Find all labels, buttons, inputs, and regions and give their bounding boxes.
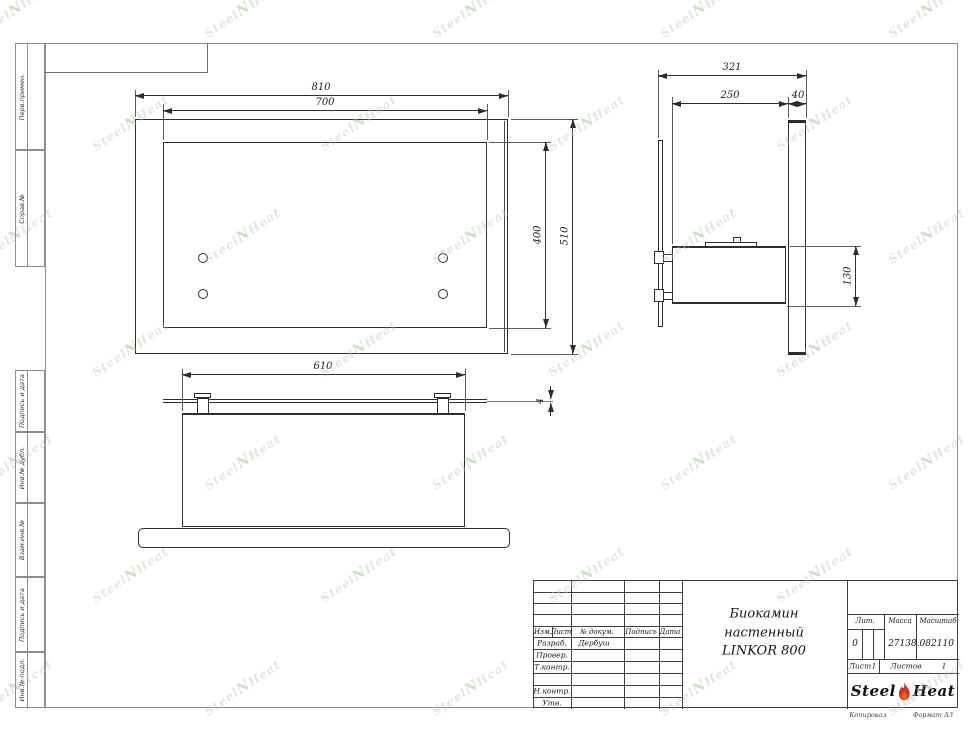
dim-label-40: 40 xyxy=(792,90,805,101)
glass-clip-body xyxy=(437,398,449,414)
frame-topleft-graph-box xyxy=(45,43,208,73)
glass-clip-body xyxy=(197,398,209,414)
dim-label-130: 130 xyxy=(843,266,854,285)
drawing-sheet: Перв.примен. Справ.№ Подпись и дата Инв.… xyxy=(0,0,970,750)
margin-divider xyxy=(27,504,28,576)
dim-line-4-upper xyxy=(550,386,551,399)
margin-label: Взам.инв.№ xyxy=(18,520,26,560)
dim-label-4: 4 xyxy=(536,398,546,404)
tb-line xyxy=(916,614,917,659)
tb-line xyxy=(847,614,959,615)
watermark: SteelNHeat xyxy=(201,0,284,42)
mounting-hole xyxy=(198,289,208,299)
margin-divider xyxy=(27,44,28,149)
margin-box-vzam-inv: Взам.инв.№ xyxy=(15,503,45,577)
margin-divider xyxy=(27,151,28,266)
extension-line xyxy=(489,328,551,329)
title-block: Изм. Лист № докум. Подпись Дата Разраб. … xyxy=(533,580,958,708)
watermark: SteelNHeat xyxy=(0,0,56,42)
dim-label-700: 700 xyxy=(315,97,334,108)
extension-line xyxy=(511,119,578,120)
top-view-burner-box xyxy=(182,413,465,527)
margin-label: Справ.№ xyxy=(18,194,26,224)
extension-line xyxy=(658,70,659,138)
extension-line xyxy=(487,104,488,140)
extension-line xyxy=(787,306,861,307)
tb-sheet-value: 1 xyxy=(872,662,877,671)
side-view-bolt-shaft xyxy=(663,254,673,262)
tb-line xyxy=(659,581,660,709)
tb-sheet-label: Лист xyxy=(849,662,871,671)
tb-col-dokum: № докум. xyxy=(580,628,614,636)
margin-box-podpis-data-2: Подпись и дата xyxy=(15,577,45,652)
tb-lit-value: 0 xyxy=(852,639,858,649)
extension-line xyxy=(672,97,673,244)
margin-label: Инв.№ дубл. xyxy=(18,446,26,488)
margin-box-sprav-no: Справ.№ xyxy=(15,150,45,267)
extension-line xyxy=(806,70,807,118)
side-view-top-plate xyxy=(705,242,757,247)
watermark: SteelNHeat xyxy=(657,0,740,42)
tb-line xyxy=(847,629,884,630)
copied-note: Копировал xyxy=(849,711,886,719)
dim-line-250 xyxy=(672,103,788,104)
tb-row-label: Н.контр. xyxy=(533,687,570,696)
tb-lit-label: Лит. xyxy=(855,617,874,625)
side-view-burner-box xyxy=(672,246,786,304)
dim-line-40 xyxy=(788,103,806,104)
dim-label-610: 610 xyxy=(313,361,332,372)
mounting-hole xyxy=(198,253,208,263)
watermark: SteelNHeat xyxy=(429,0,512,42)
tb-col-list: Лист xyxy=(551,628,572,636)
extension-line xyxy=(465,369,466,411)
tb-line xyxy=(534,626,682,627)
margin-divider xyxy=(27,371,28,431)
margin-box-inv-podl: Инв.№ подл. xyxy=(15,652,45,708)
side-view-bolt-shaft xyxy=(663,292,673,300)
dim-line-610 xyxy=(182,374,465,375)
tb-line xyxy=(847,673,959,674)
margin-box-inv-dubl: Инв.№ дубл. xyxy=(15,432,45,503)
tb-line xyxy=(873,629,874,659)
dim-line-321 xyxy=(658,75,806,76)
top-view-wall-panel xyxy=(138,528,510,548)
tb-row-label: Т.контр. xyxy=(534,663,570,672)
logo-text-steel: Steel xyxy=(851,682,896,700)
doc-title-line2: настенный xyxy=(724,626,804,641)
dim-line-4-lower xyxy=(550,403,551,416)
dim-line-700 xyxy=(163,110,487,111)
tb-line xyxy=(534,592,682,593)
dim-line-810 xyxy=(135,95,508,96)
side-view-burner-nub xyxy=(733,237,741,243)
extension-line xyxy=(508,90,509,117)
margin-label: Перв.примен. xyxy=(18,73,26,120)
tb-line xyxy=(682,581,683,709)
dim-line-400 xyxy=(545,142,546,328)
tb-row-label: Провер. xyxy=(536,651,568,660)
dim-label-250: 250 xyxy=(720,90,739,101)
tb-scale-label: Масштаб xyxy=(920,617,957,625)
tb-row-label: Разраб. xyxy=(537,639,567,648)
extension-line xyxy=(511,354,578,355)
tb-line xyxy=(624,581,625,709)
tb-row-label: Утв. xyxy=(542,699,561,708)
mounting-hole xyxy=(438,289,448,299)
tb-row-name: Дербуш xyxy=(578,639,609,648)
logo-text-heat: Heat xyxy=(913,682,955,700)
tb-sheets-label: Листов xyxy=(890,662,921,671)
tb-col-data: Дата xyxy=(660,628,681,636)
margin-divider xyxy=(27,578,28,651)
margin-label: Подпись и дата xyxy=(18,588,26,642)
tb-line xyxy=(534,673,682,674)
steelheat-logo: Steel Heat xyxy=(851,681,955,701)
doc-title-line1: Биокамин xyxy=(730,607,799,622)
margin-label: Подпись и дата xyxy=(18,374,26,428)
dim-label-810: 810 xyxy=(311,82,330,93)
front-view-opening xyxy=(163,142,487,328)
watermark: SteelNHeat xyxy=(885,0,968,42)
dim-line-130 xyxy=(855,246,856,306)
flame-icon xyxy=(897,681,912,701)
dim-label-321: 321 xyxy=(722,62,741,73)
mounting-hole xyxy=(438,253,448,263)
tb-mass-scale-value: 27138.082110 xyxy=(888,639,954,649)
tb-col-izm: Изм. xyxy=(534,628,552,636)
tb-line xyxy=(571,581,572,709)
extension-line xyxy=(790,246,861,247)
dim-line-510 xyxy=(572,119,573,354)
front-view-glass-edge-line xyxy=(504,121,505,352)
margin-label: Инв.№ подл. xyxy=(18,659,26,702)
tb-sheets-value: 1 xyxy=(942,662,947,671)
margin-box-podpis-data-1: Подпись и дата xyxy=(15,370,45,432)
tb-line xyxy=(847,581,848,709)
tb-line xyxy=(534,614,682,615)
tb-mass-label: Масса xyxy=(888,617,911,625)
dim-label-400: 400 xyxy=(533,225,544,244)
format-note: Формат А3 xyxy=(913,711,953,719)
tb-line xyxy=(847,659,959,660)
tb-line xyxy=(862,629,863,659)
dim-label-510: 510 xyxy=(560,226,571,245)
margin-divider xyxy=(27,433,28,502)
tb-col-podpis: Подпись xyxy=(625,628,657,636)
side-view-wall-panel xyxy=(788,120,806,355)
tb-line xyxy=(879,659,880,673)
margin-box-perv-primen: Перв.примен. xyxy=(15,43,45,150)
tb-line xyxy=(534,603,682,604)
tb-line xyxy=(884,614,885,659)
margin-divider xyxy=(27,653,28,707)
doc-title-line3: LINKOR 800 xyxy=(722,644,806,659)
